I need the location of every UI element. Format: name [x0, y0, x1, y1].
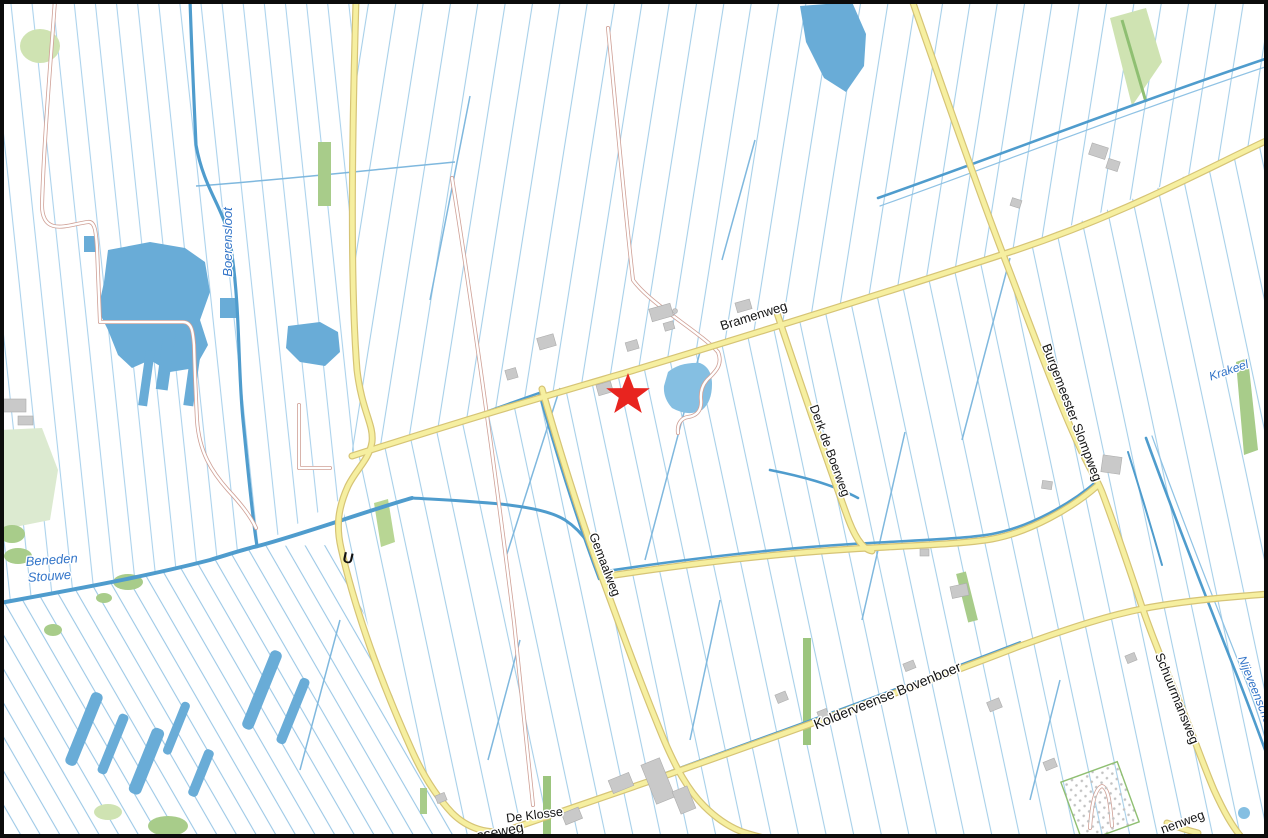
water-label-boerensloot: Boerensloot [220, 206, 235, 277]
svg-text:Stouwe: Stouwe [27, 567, 71, 585]
map-frame: Bramenweg Derk de Boerweg Burgemeester S… [0, 0, 1268, 838]
map-canvas[interactable]: Bramenweg Derk de Boerweg Burgemeester S… [0, 0, 1268, 838]
